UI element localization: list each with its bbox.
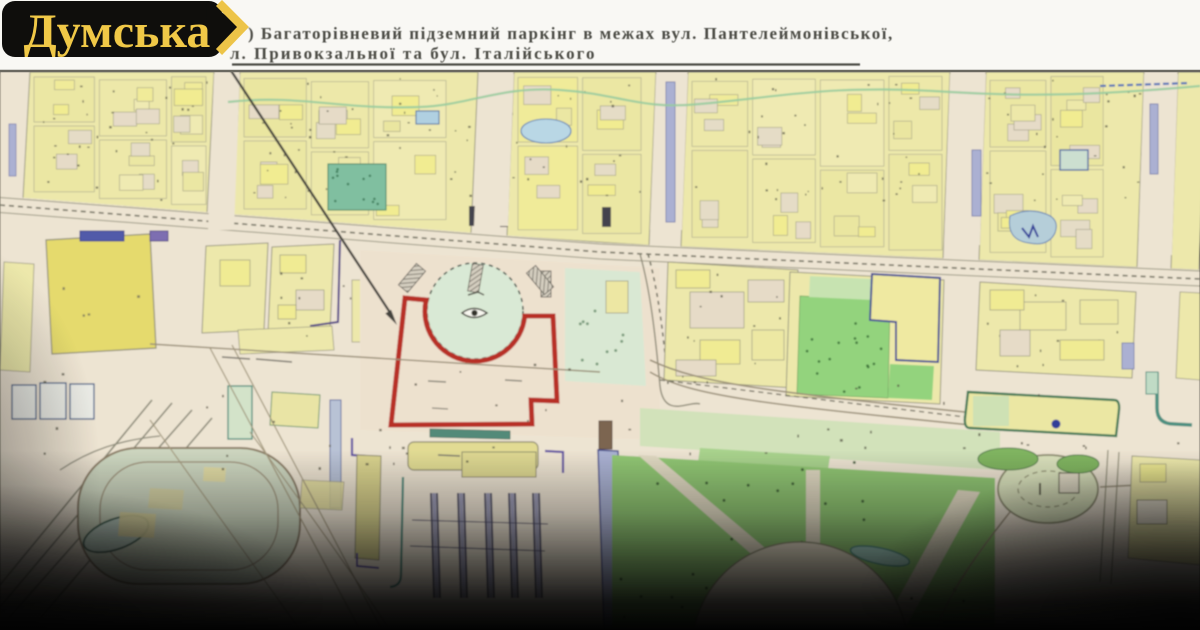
svg-text:) Багаторівневий підземний пар: ) Багаторівневий підземний паркінг в меж…	[248, 24, 894, 43]
svg-text:Думська: Думська	[24, 5, 211, 58]
svg-text:л. Привокзальної та бул. Італі: л. Привокзальної та бул. Італійського	[230, 44, 596, 63]
